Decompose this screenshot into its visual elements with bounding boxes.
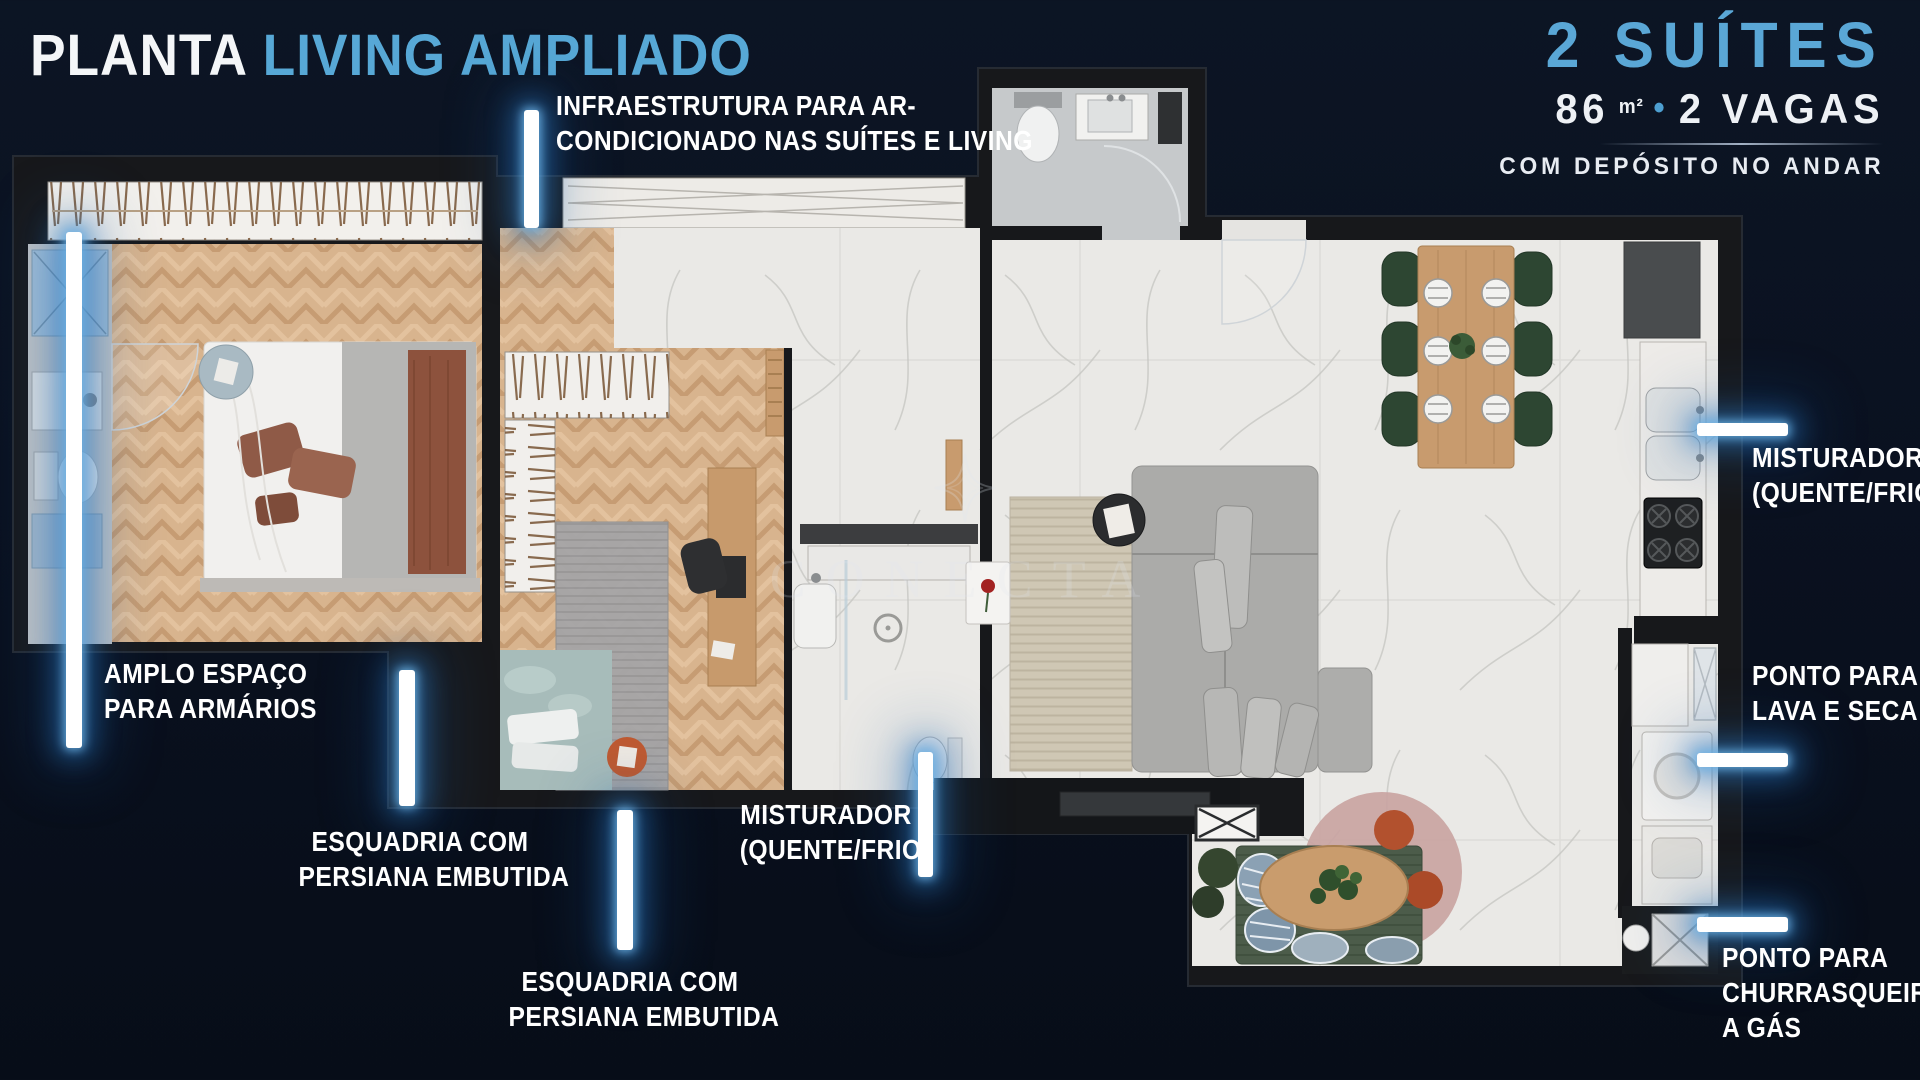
callout-lava-seca-line	[1697, 753, 1788, 767]
suite2-bed	[500, 650, 612, 790]
callout-esquadria1-line	[399, 670, 415, 806]
callout-esquadria2-line	[617, 810, 633, 950]
dining-table	[1382, 246, 1552, 468]
callout-churrasqueira-line	[1697, 917, 1788, 932]
callout-ac-label: INFRAESTRUTURA PARA AR- CONDICIONADO NAS…	[556, 88, 1033, 158]
callout-lava-seca-label: PONTO PARA LAVA E SECA	[1752, 658, 1918, 728]
callout-ac-line	[524, 110, 539, 228]
rose-side-table	[966, 562, 1010, 624]
suite1	[28, 182, 482, 644]
callout-misturador-banho-label: MISTURADOR (QUENTE/FRIO)	[740, 797, 912, 867]
crate-table	[1196, 806, 1258, 840]
callout-closet-label: AMPLO ESPAÇO PARA ARMÁRIOS	[104, 656, 317, 726]
callout-esquadria1-label: ESQUADRIA COM PERSIANA EMBUTIDA	[299, 824, 542, 894]
window-strip	[563, 178, 965, 228]
floor-plan	[0, 0, 1920, 1080]
callout-churrasqueira-label: PONTO PARA CHURRASQUEIRA A GÁS	[1722, 940, 1920, 1045]
callout-closet-line	[66, 232, 82, 748]
callout-esquadria2-label: ESQUADRIA COM PERSIANA EMBUTIDA	[509, 964, 752, 1034]
callout-misturador-cozinha-line	[1697, 423, 1788, 436]
living-area	[934, 220, 1718, 974]
callout-misturador-cozinha-label: MISTURADOR (QUENTE/FRIO)	[1752, 440, 1920, 510]
sofa	[1010, 466, 1372, 780]
laundry	[1632, 644, 1716, 904]
